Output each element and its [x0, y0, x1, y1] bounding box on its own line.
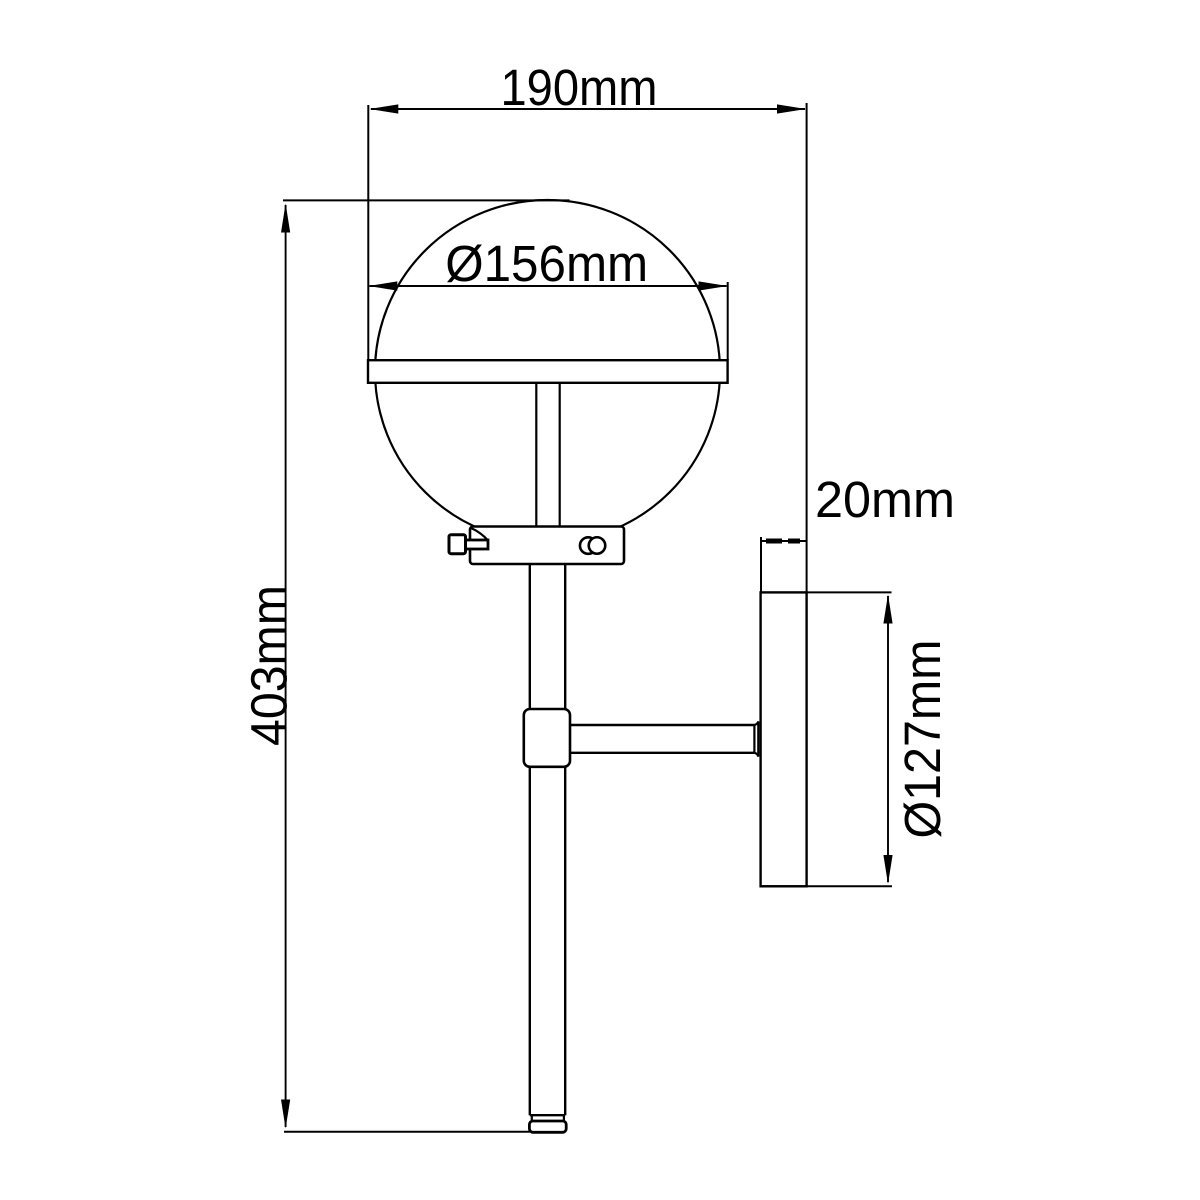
svg-text:Ø127mm: Ø127mm: [894, 640, 951, 839]
svg-text:403mm: 403mm: [241, 585, 298, 746]
svg-text:Ø156mm: Ø156mm: [445, 235, 648, 292]
svg-text:20mm: 20mm: [815, 471, 955, 528]
svg-text:190mm: 190mm: [501, 59, 658, 116]
